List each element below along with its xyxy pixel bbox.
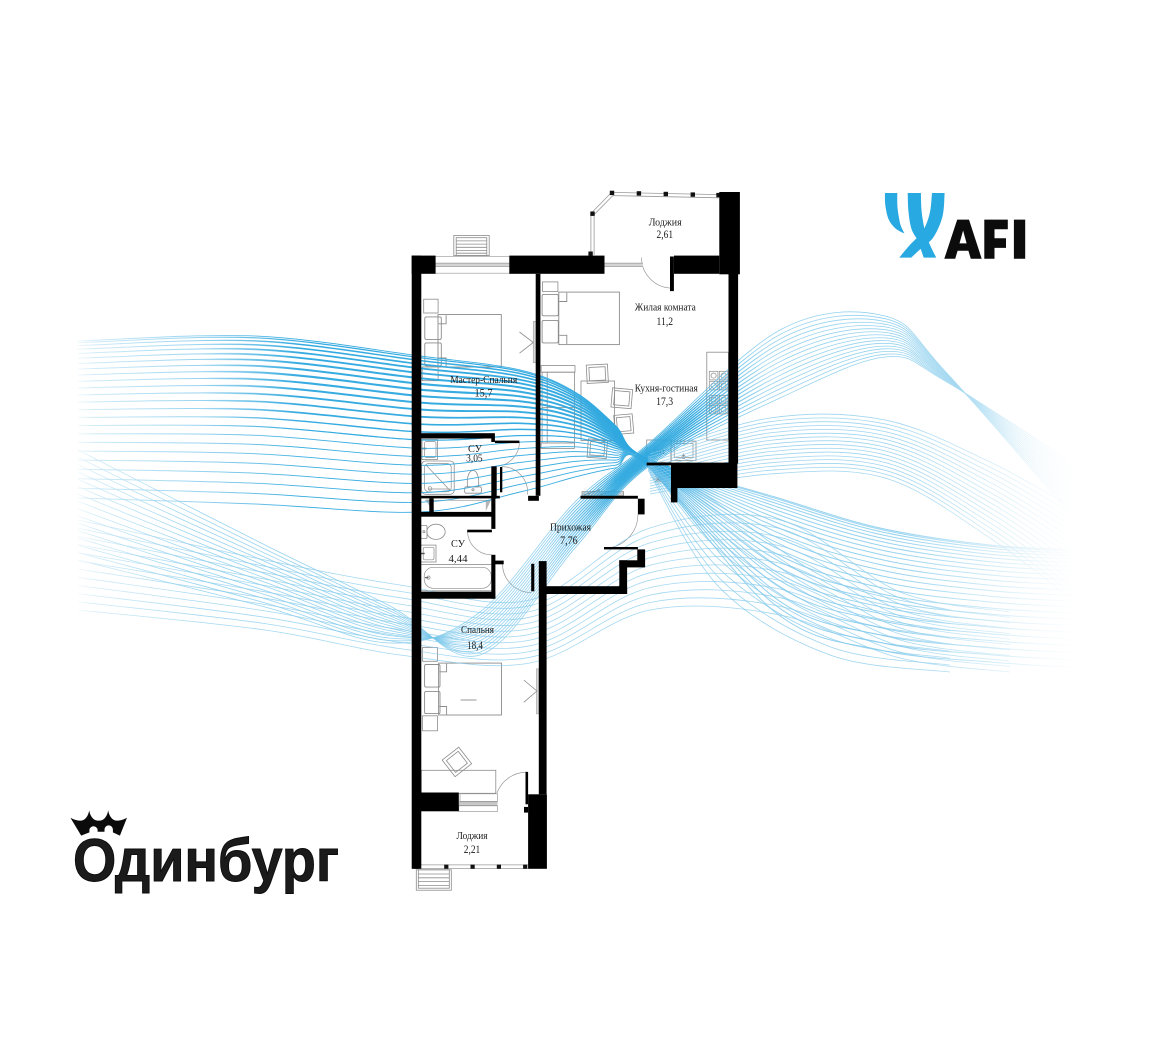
svg-text:Прихожая: Прихожая bbox=[550, 523, 591, 534]
svg-text:7,76: 7,76 bbox=[560, 533, 578, 547]
svg-text:Спальня: Спальня bbox=[461, 625, 494, 636]
svg-text:4,44: 4,44 bbox=[449, 553, 468, 565]
svg-text:11,2: 11,2 bbox=[657, 314, 674, 328]
svg-text:Мастер-Спальня: Мастер-Спальня bbox=[450, 375, 517, 386]
svg-text:17,3: 17,3 bbox=[656, 394, 673, 408]
svg-text:Лоджия: Лоджия bbox=[457, 831, 488, 842]
svg-text:3,05: 3,05 bbox=[466, 453, 483, 465]
svg-text:2,21: 2,21 bbox=[464, 842, 481, 856]
svg-text:18,4: 18,4 bbox=[467, 638, 483, 652]
svg-text:Одинбург: Одинбург bbox=[73, 827, 339, 894]
svg-text:СУ: СУ bbox=[451, 539, 466, 550]
svg-text:Жилая комната: Жилая комната bbox=[635, 302, 697, 313]
svg-text:Кухня-гостиная: Кухня-гостиная bbox=[635, 383, 698, 394]
svg-text:15,7: 15,7 bbox=[475, 386, 493, 400]
svg-text:2,61: 2,61 bbox=[657, 227, 674, 241]
